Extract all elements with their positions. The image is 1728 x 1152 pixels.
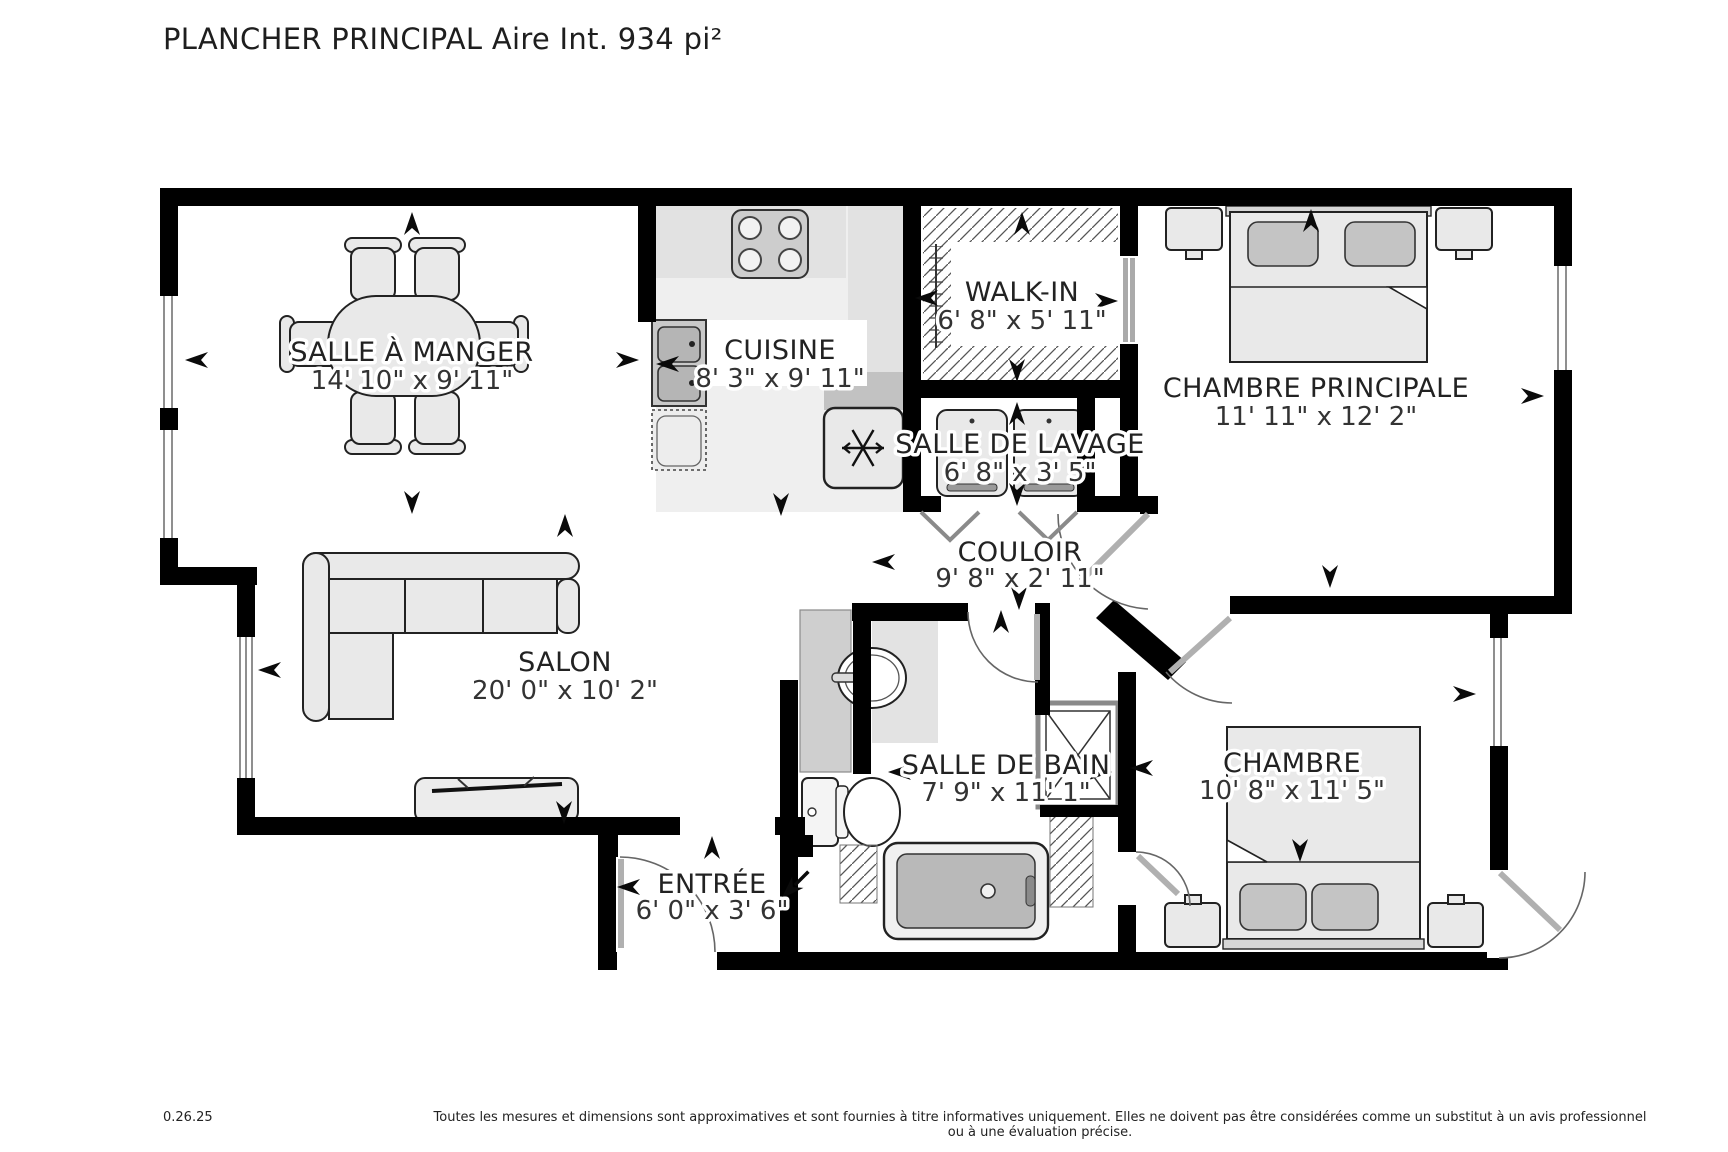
arrow-icon [993,610,1009,633]
master-bed [1226,206,1431,362]
nightstand [1166,208,1222,250]
arrow-icon [872,554,895,570]
nightstand [1165,903,1220,947]
nightstand-knob [1456,250,1472,259]
window [1551,266,1575,370]
room-dim-walk-in: 6' 8" x 5' 11" [937,306,1106,336]
room-dim-salle-de-lavage: 6' 8" x 3' 5" [944,458,1097,488]
arrow-icon [1322,565,1338,588]
arrow-icon [404,491,420,514]
pillow [1248,222,1318,266]
nightstand [1436,208,1492,250]
nightstand [1428,903,1483,947]
footer-version-code: 0.26.25 [163,1110,213,1125]
dishwasher-icon [652,410,706,470]
room-label-chambre-principale: CHAMBRE PRINCIPALE [1163,373,1469,404]
bathtub-icon [884,843,1048,939]
bedroom-closet-hatch [1050,815,1093,907]
bifold-doors [921,512,1077,540]
arrow-icon [1521,388,1544,404]
room-dim-cuisine: 8' 3" x 9' 11" [695,364,864,394]
arrow-icon [404,212,420,235]
room-label-salle-de-lavage: SALLE DE LAVAGE [895,429,1144,460]
window [157,296,181,408]
footer-disclaimer: Toutes les mesures et dimensions sont ap… [430,1110,1650,1140]
nightstand-knob [1448,895,1464,904]
room-label-salle-de-bain: SALLE DE BAIN [902,750,1111,781]
tv-console [415,777,578,822]
arrow-icon [258,662,281,678]
arrow-icon [704,836,720,859]
arrow-icon [557,514,573,537]
nightstand-knob [1186,250,1202,259]
room-label-salle-a-manger: SALLE À MANGER [290,336,533,368]
toilet-icon [802,778,900,846]
pillow [1312,884,1378,930]
arrow-icon [616,352,639,368]
pillow [1345,222,1415,266]
room-dim-salle-a-manger: 14' 10" x 9' 11" [311,366,513,396]
refrigerator-icon [824,408,903,488]
room-dim-chambre: 10' 8" x 11' 5" [1199,776,1385,806]
window [157,430,181,538]
room-label-walk-in: WALK-IN [965,277,1079,308]
room-dim-entree: 6' 0" x 3' 6" [636,896,789,926]
window [234,637,258,778]
room-label-salon: SALON [518,647,612,678]
room-dim-salon: 20' 0" x 10' 2" [472,676,658,706]
stove-icon [732,210,808,278]
door-swing [1136,852,1190,906]
room-dim-salle-de-bain: 7' 9" x 11' 1" [921,778,1090,808]
sliding-door [1120,256,1138,344]
door-swing [1499,872,1585,958]
nightstand-knob [1185,895,1201,904]
room-label-chambre: CHAMBRE [1223,748,1361,779]
room-dim-chambre-principale: 11' 11" x 12' 2" [1215,402,1417,432]
floor-plan-canvas: SALLE À MANGER 14' 10" x 9' 11" CUISINE … [0,0,1728,1152]
arrow-icon [185,352,208,368]
room-dim-couloir: 9' 8" x 2' 11" [935,564,1104,594]
entry-door-opening [617,950,717,972]
linen-closet-hatch [840,845,877,903]
pillow [1240,884,1306,930]
window [1487,638,1511,746]
room-label-cuisine: CUISINE [724,335,836,366]
arrow-icon [1453,686,1476,702]
